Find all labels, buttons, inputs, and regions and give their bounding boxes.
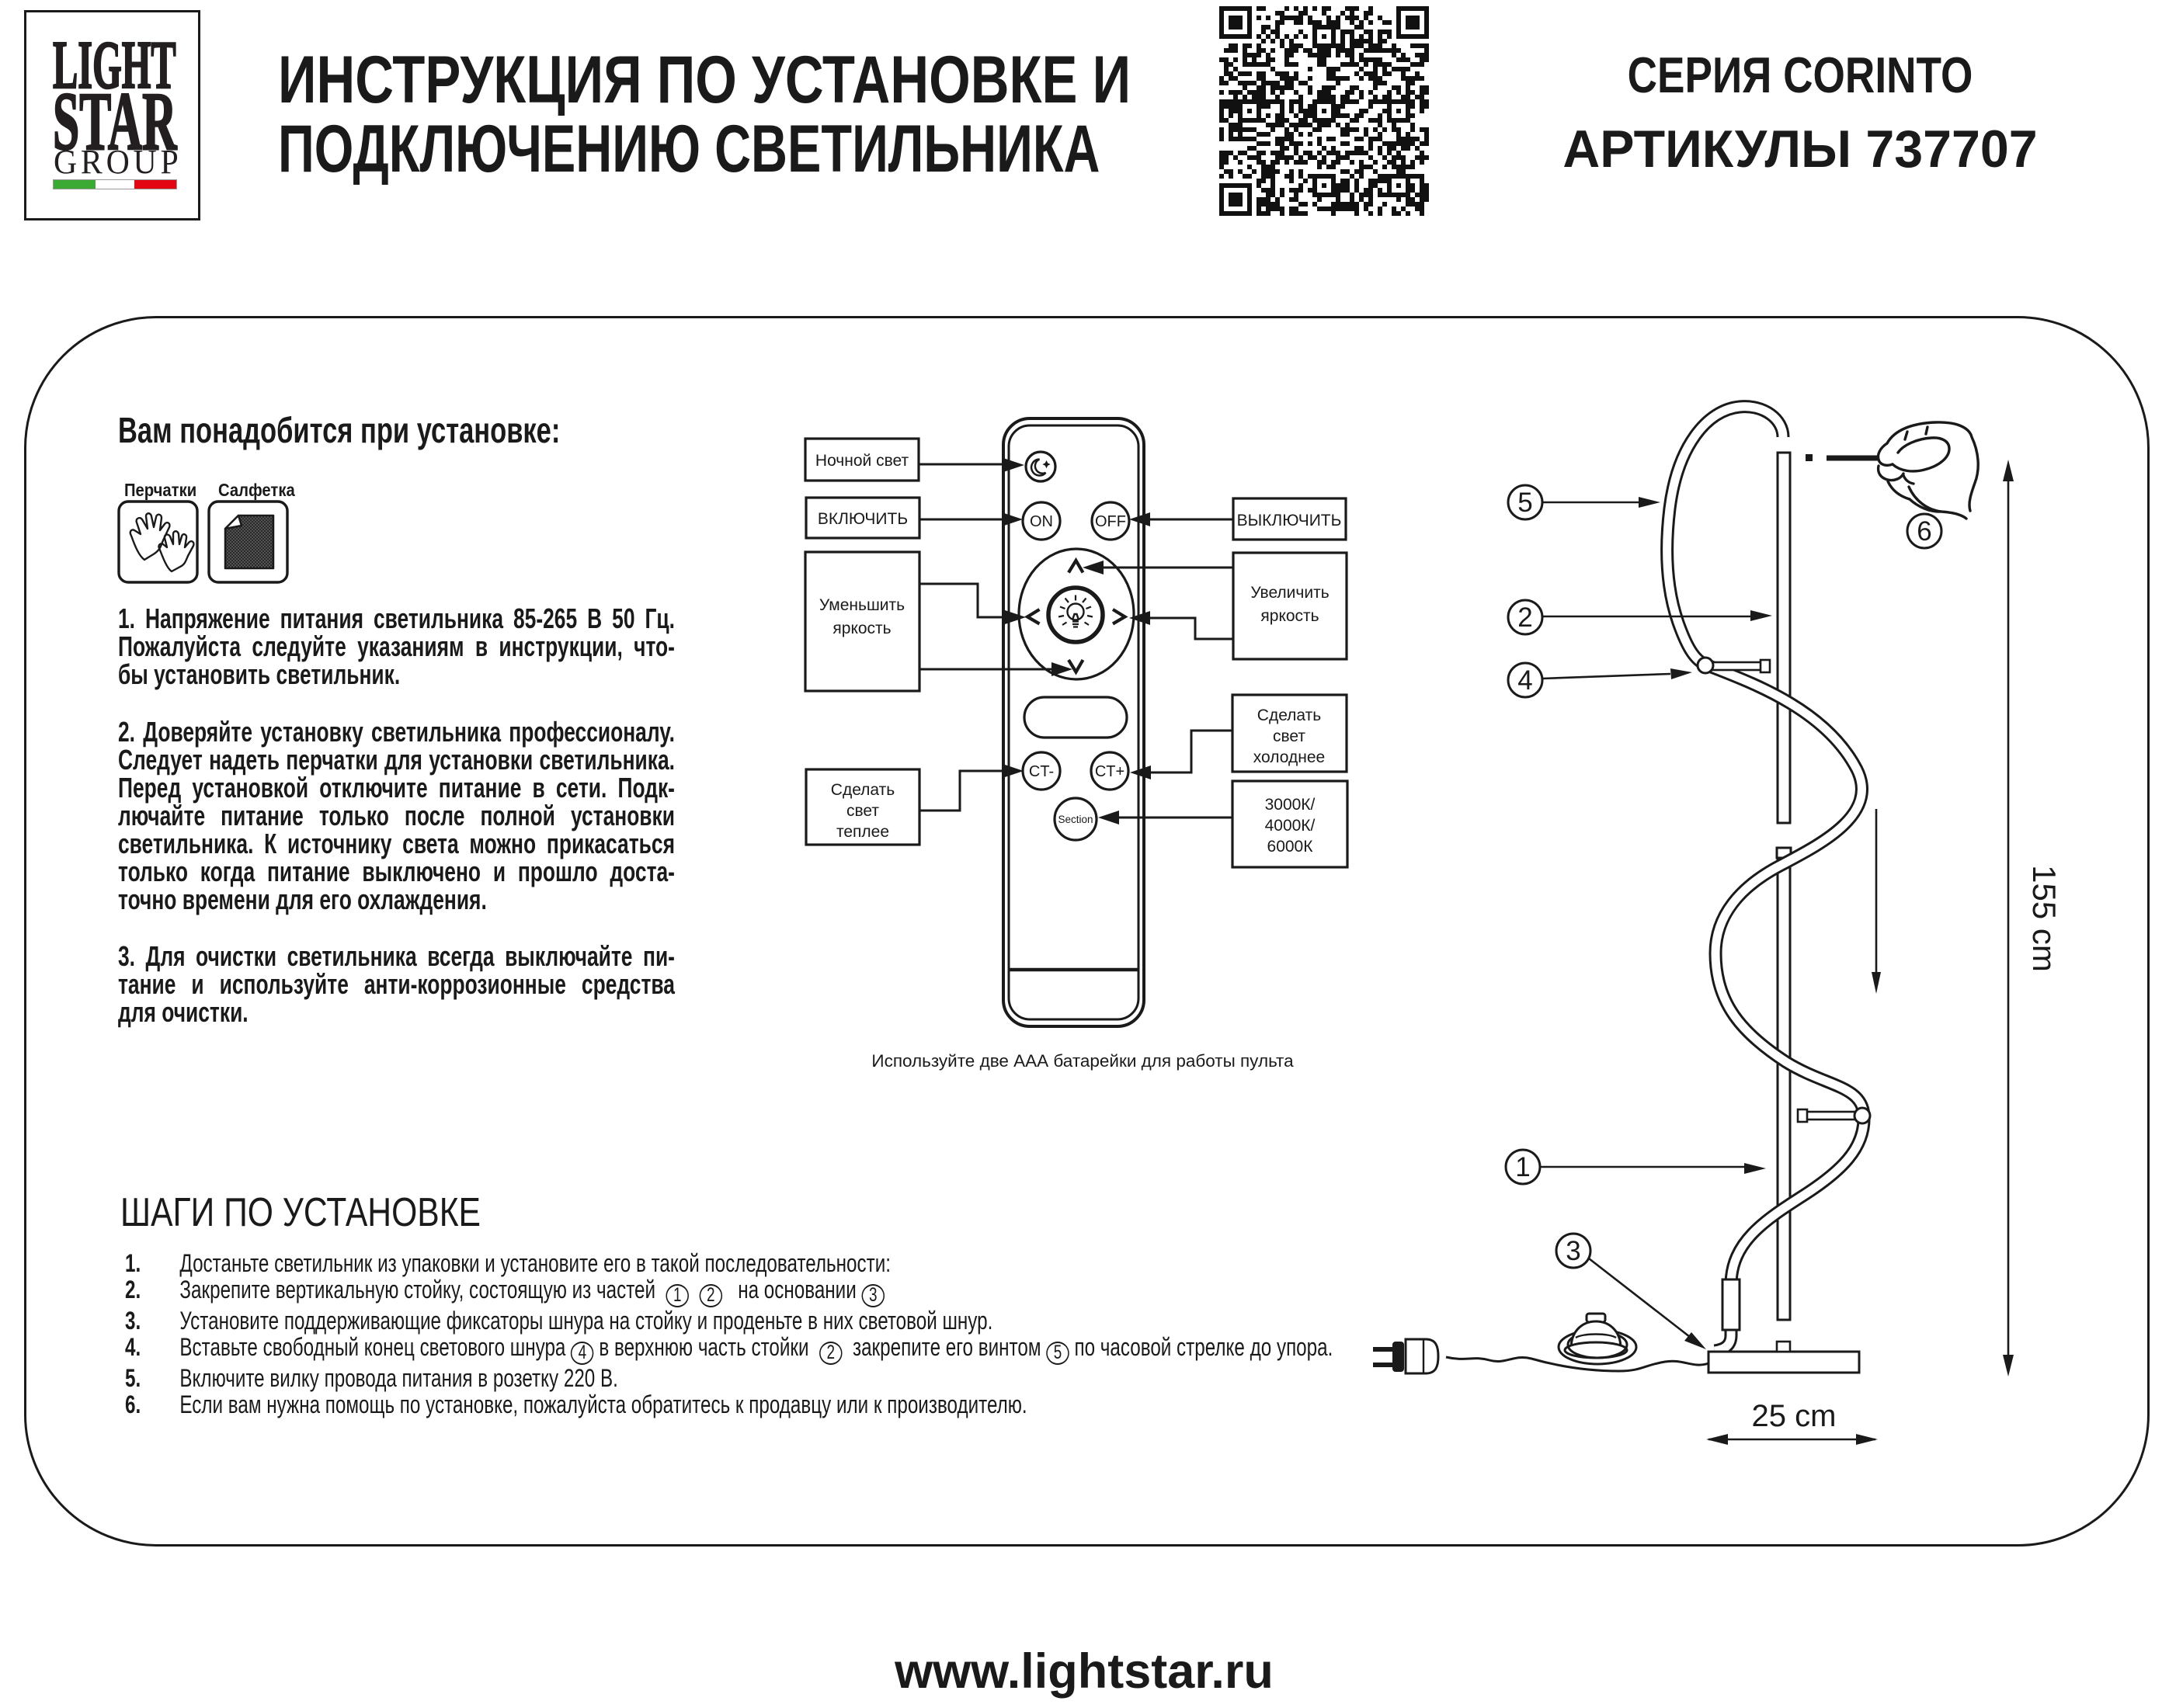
svg-text:155 cm: 155 cm (2026, 865, 2063, 972)
svg-text:яркость: яркость (832, 620, 891, 637)
svg-text:4000К/: 4000К/ (1265, 817, 1316, 835)
svg-text:холоднее: холоднее (1253, 748, 1325, 766)
svg-text:3000К/: 3000К/ (1265, 796, 1316, 814)
svg-text:ВЫКЛЮЧИТЬ: ВЫКЛЮЧИТЬ (1237, 512, 1342, 529)
svg-text:свет: свет (1273, 727, 1305, 745)
svg-text:теплее: теплее (836, 823, 889, 841)
svg-text:яркость: яркость (1260, 607, 1319, 625)
svg-text:OFF: OFF (1095, 513, 1126, 530)
svg-text:Section: Section (1058, 814, 1093, 825)
svg-text:Увеличить: Увеличить (1250, 584, 1329, 602)
svg-text:2: 2 (1517, 602, 1532, 633)
svg-text:CT+: CT+ (1095, 763, 1124, 780)
svg-text:5: 5 (1517, 488, 1532, 518)
svg-text:свет: свет (846, 802, 879, 820)
svg-text:Сделать: Сделать (831, 781, 895, 799)
svg-text:3: 3 (1566, 1236, 1580, 1266)
svg-text:25 cm: 25 cm (1752, 1399, 1837, 1433)
svg-text:Используйте две ААА батарейки: Используйте две ААА батарейки для работы… (871, 1051, 1294, 1071)
svg-text:ON: ON (1030, 513, 1053, 530)
svg-text:CT-: CT- (1029, 763, 1054, 780)
svg-text:6: 6 (1917, 516, 1931, 547)
svg-text:Ночной свет: Ночной свет (815, 452, 909, 470)
svg-text:6000К: 6000К (1267, 838, 1314, 856)
svg-text:Уменьшить: Уменьшить (819, 596, 905, 614)
svg-text:ВКЛЮЧИТЬ: ВКЛЮЧИТЬ (818, 510, 908, 528)
svg-text:4: 4 (1517, 665, 1532, 696)
svg-text:1: 1 (1515, 1152, 1530, 1182)
svg-text:Сделать: Сделать (1257, 706, 1321, 724)
